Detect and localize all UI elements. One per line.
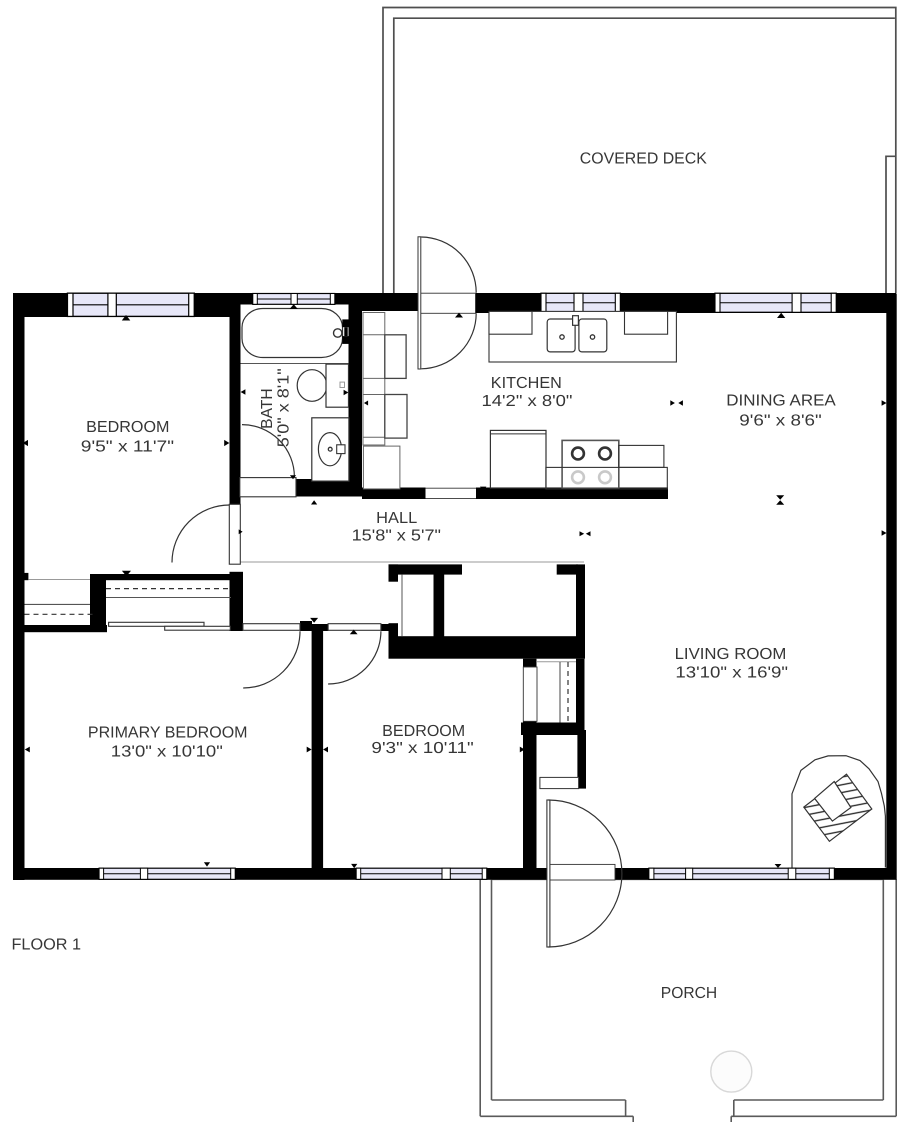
svg-text:5'0" x 8'1": 5'0" x 8'1" — [275, 368, 292, 447]
svg-text:BEDROOM: BEDROOM — [382, 723, 465, 740]
svg-text:FLOOR 1: FLOOR 1 — [12, 937, 82, 954]
svg-text:9'3" x 10'11": 9'3" x 10'11" — [371, 740, 473, 757]
svg-text:HALL: HALL — [376, 510, 417, 527]
svg-text:COVERED DECK: COVERED DECK — [580, 150, 707, 167]
svg-text:14'2" x 8'0": 14'2" x 8'0" — [482, 393, 573, 410]
svg-text:PORCH: PORCH — [661, 985, 717, 1002]
svg-text:13'0" x 10'10": 13'0" x 10'10" — [111, 743, 223, 760]
svg-text:KITCHEN: KITCHEN — [491, 375, 562, 392]
svg-text:15'8" x 5'7": 15'8" x 5'7" — [352, 527, 441, 544]
svg-text:13'10" x 16'9": 13'10" x 16'9" — [675, 665, 788, 682]
svg-text:9'5" x 11'7": 9'5" x 11'7" — [81, 439, 174, 456]
svg-text:9'6" x 8'6": 9'6" x 8'6" — [739, 412, 822, 429]
svg-text:DINING AREA: DINING AREA — [726, 393, 836, 410]
svg-text:LIVING ROOM: LIVING ROOM — [675, 646, 787, 663]
svg-text:BEDROOM: BEDROOM — [86, 419, 169, 436]
svg-text:BATH: BATH — [259, 388, 276, 429]
svg-text:PRIMARY BEDROOM: PRIMARY BEDROOM — [88, 725, 248, 742]
